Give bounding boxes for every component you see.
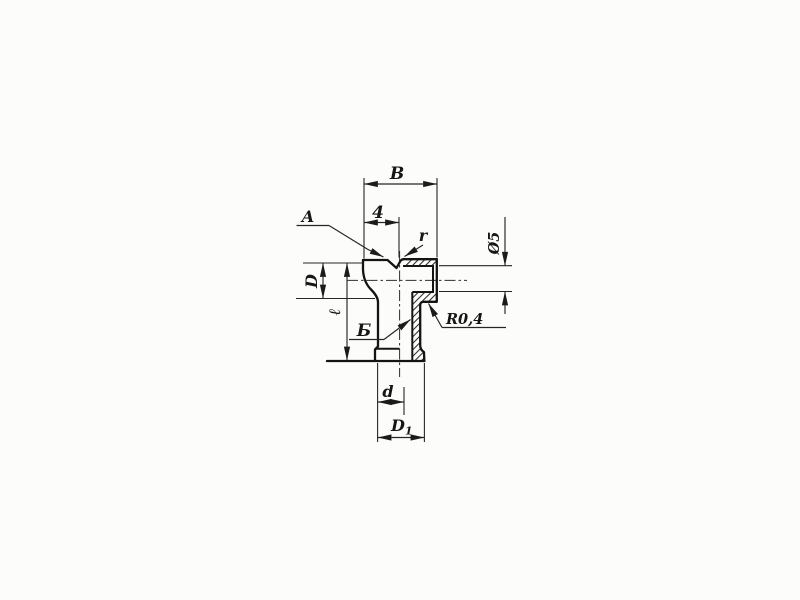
label-A: A: [300, 207, 314, 226]
label-B-cyrillic: Б: [356, 321, 372, 341]
label-d: d: [382, 382, 393, 401]
drawing-sheet: B 4 A r D ℓ Б Ø5: [0, 0, 800, 600]
dimension-bore-diameter: Ø5: [439, 217, 512, 314]
leader-line: [384, 320, 411, 340]
label-4: 4: [372, 203, 384, 223]
leader-line: [429, 304, 443, 328]
leader-line: [329, 226, 384, 258]
label-D1: D1: [390, 416, 413, 438]
dimension-length: ℓ: [325, 263, 347, 361]
leader-note-B-cyrillic: Б: [349, 320, 411, 342]
label-dia5: Ø5: [486, 232, 503, 256]
label-r: r: [419, 226, 429, 245]
leader-fillet-radius: R0,4: [429, 304, 507, 329]
technical-drawing: B 4 A r D ℓ Б Ø5: [0, 0, 800, 600]
label-D: D: [302, 274, 321, 289]
label-B: B: [389, 164, 404, 184]
section-right-profile: [420, 259, 437, 361]
head-bore-cavity: [403, 266, 433, 292]
hatch-head-top-wall: [404, 260, 437, 266]
left-silhouette: [363, 260, 378, 361]
leader-note-A: A: [297, 207, 384, 257]
label-R04: R0,4: [445, 311, 483, 328]
dimension-slot-offset: 4: [364, 203, 399, 258]
leader-fillet-r: r: [405, 226, 429, 257]
leader-line: [405, 245, 424, 257]
label-l: ℓ: [325, 309, 344, 317]
